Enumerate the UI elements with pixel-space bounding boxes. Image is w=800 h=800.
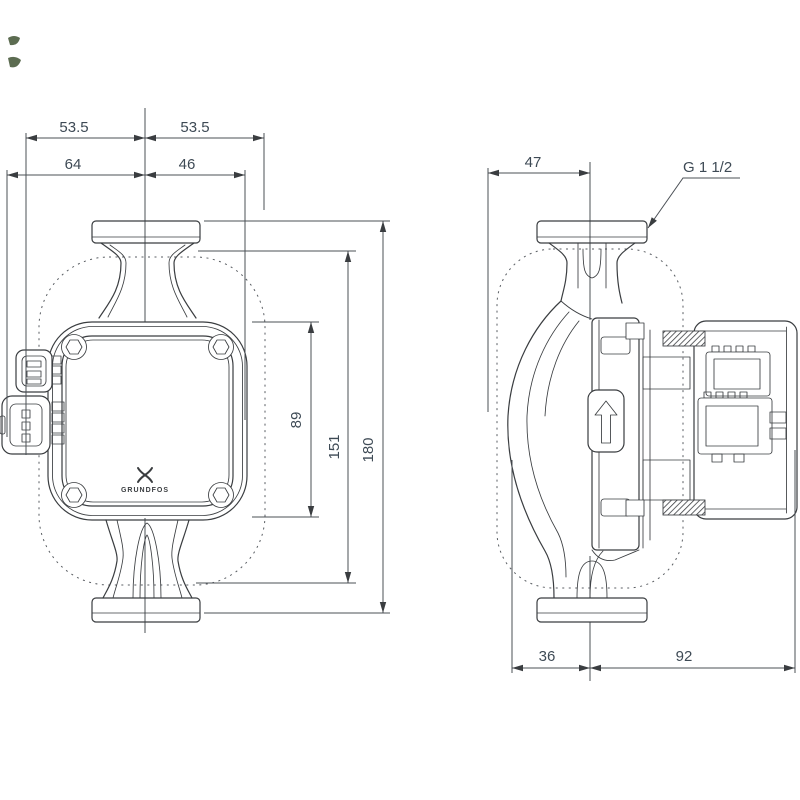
thread-size-label: G 1 1/2 xyxy=(683,159,732,176)
front-dimensions: 53.5 53.5 64 46 89 151 180 xyxy=(7,119,390,613)
dim-label-151: 151 xyxy=(326,434,343,459)
dim-label-180: 180 xyxy=(360,437,377,462)
dim-label-92: 92 xyxy=(676,648,693,665)
rotation-envelope-dashed-outline xyxy=(39,257,265,585)
dim-label-46: 46 xyxy=(179,156,196,173)
dim-label-53-5-right: 53.5 xyxy=(180,119,209,136)
clamp-screw xyxy=(663,500,705,515)
thread-leader-line xyxy=(648,178,740,228)
front-bottom-flange xyxy=(92,598,200,622)
corner-bolts xyxy=(62,335,234,508)
dimension-arrows xyxy=(7,135,386,613)
front-view: GRUNDFOS xyxy=(0,108,390,633)
dim-label-64: 64 xyxy=(65,156,82,173)
dim-label-89: 89 xyxy=(288,412,305,429)
artifact-mark xyxy=(8,57,21,67)
flow-direction-arrow xyxy=(588,390,624,452)
dim-label-47: 47 xyxy=(525,154,542,171)
side-bottom-flange xyxy=(537,598,647,622)
dim-label-36: 36 xyxy=(539,648,556,665)
pump-dimensional-drawing: GRUNDFOS xyxy=(0,0,800,800)
side-top-flange xyxy=(537,221,647,243)
clamp-screw xyxy=(663,331,705,346)
scan-artifacts xyxy=(8,36,21,67)
front-top-flange xyxy=(92,221,200,243)
side-electrical-connectors xyxy=(698,346,786,462)
grundfos-logo: GRUNDFOS xyxy=(121,468,169,494)
dim-label-53-5-left: 53.5 xyxy=(59,119,88,136)
side-view: 47 G 1 1/2 36 92 xyxy=(488,154,797,681)
side-pump-body xyxy=(508,221,797,622)
front-electrical-connectors xyxy=(0,350,64,454)
logo-text: GRUNDFOS xyxy=(121,487,169,494)
artifact-mark xyxy=(8,36,20,45)
front-pump-body: GRUNDFOS xyxy=(48,221,247,622)
